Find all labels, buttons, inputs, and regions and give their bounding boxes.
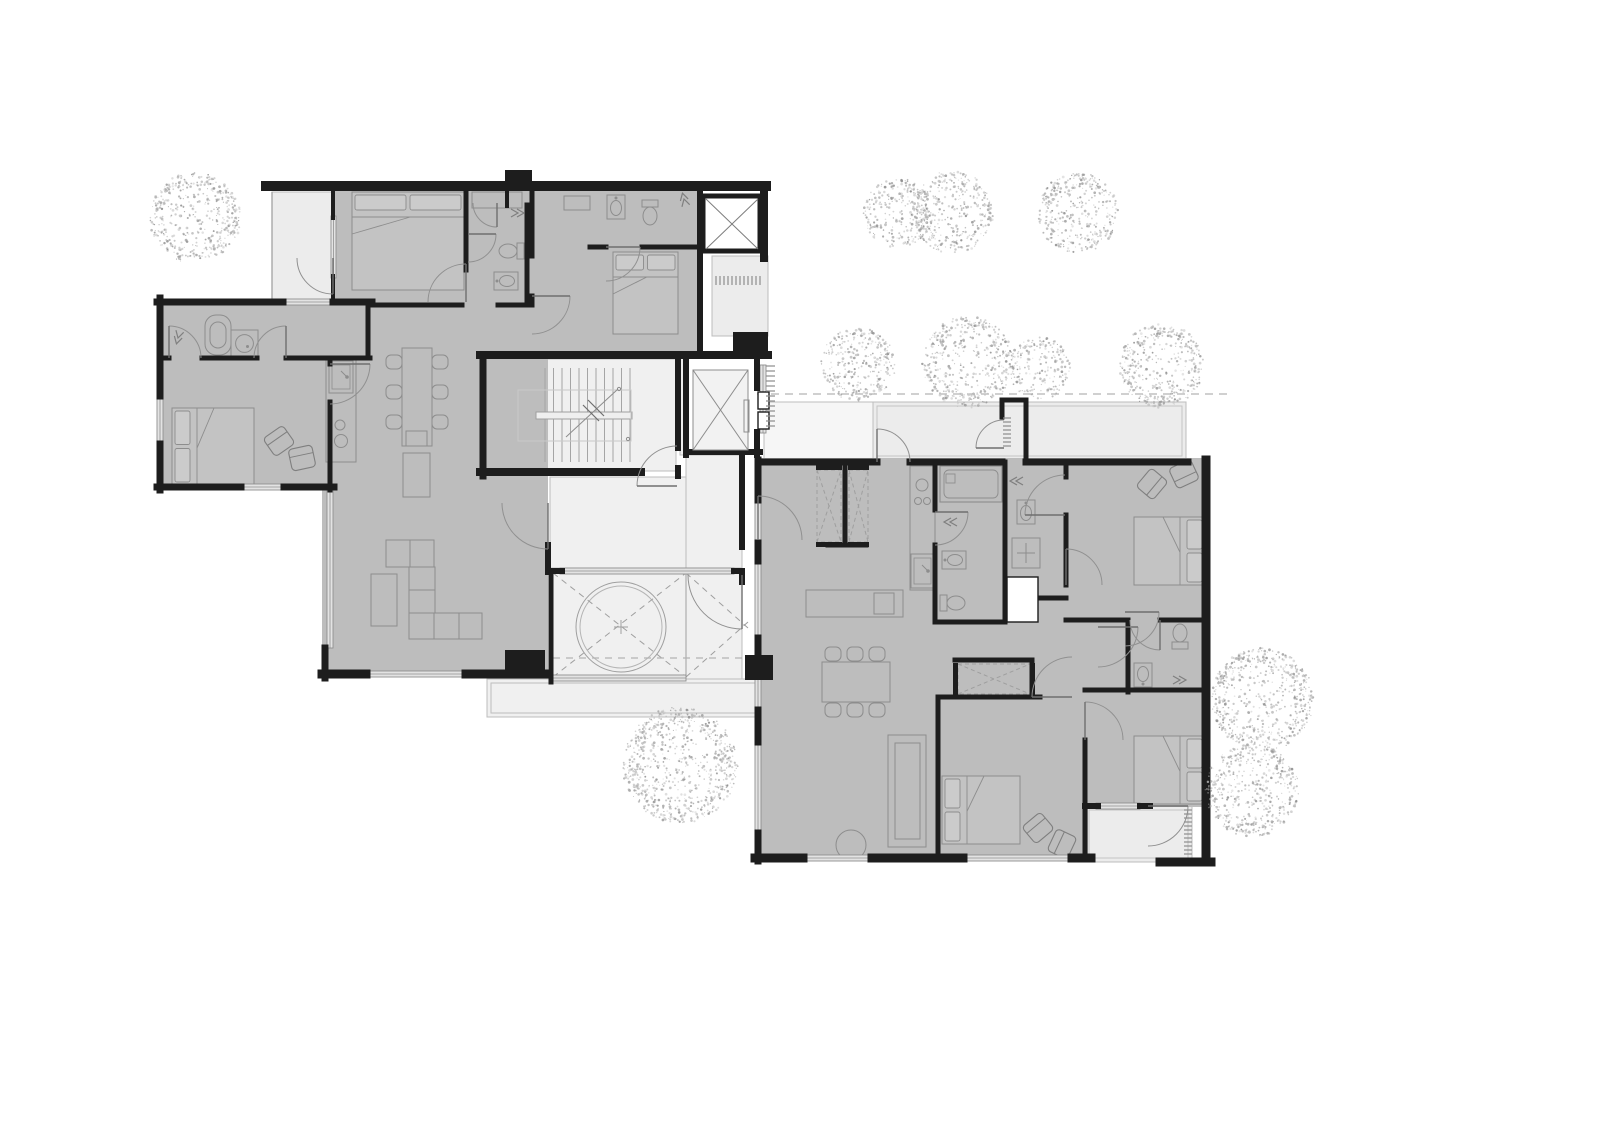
dining-chair-symbol [825, 647, 841, 661]
wall-stub [1007, 577, 1038, 622]
tree-symbol [622, 707, 738, 823]
pillow [175, 411, 190, 445]
dining-chair-symbol [869, 647, 885, 661]
pillow [945, 812, 960, 841]
pillow [945, 779, 960, 808]
tree-symbol [820, 328, 895, 402]
pillow [355, 195, 406, 210]
bed-symbol [942, 776, 1020, 844]
tree-symbol [1038, 173, 1119, 253]
pillow [1187, 553, 1202, 582]
bed-symbol [172, 408, 254, 485]
room-area [758, 458, 1088, 860]
dining-chair-symbol [847, 647, 863, 661]
wall-stub [733, 332, 768, 356]
bed-symbol [1134, 736, 1205, 804]
dining-chair-symbol [386, 385, 402, 399]
wall-stub [505, 650, 545, 676]
terrace-area [550, 477, 686, 569]
pillow [410, 195, 461, 210]
decor-rect [536, 412, 632, 419]
floor-plan-drawing [0, 0, 1600, 1131]
dining-chair-symbol [386, 355, 402, 369]
tree-symbol [1205, 743, 1299, 837]
dining-chair-symbol [386, 415, 402, 429]
floor-plan-page [0, 0, 1600, 1131]
dining-chair-symbol [432, 415, 448, 429]
dining-chair-symbol [432, 385, 448, 399]
terrace-area [550, 568, 742, 680]
tree-symbol [1119, 323, 1204, 409]
dining-chair-symbol [432, 355, 448, 369]
wall-stub [745, 655, 773, 680]
room-area [1088, 620, 1205, 692]
pillow [648, 255, 676, 270]
terrace-area [686, 455, 742, 568]
dining-chair-symbol [869, 703, 885, 717]
dining-chair-symbol [847, 703, 863, 717]
pillow [1187, 739, 1202, 768]
pillow [175, 449, 190, 483]
terrace-area [873, 402, 1186, 460]
bed-symbol [352, 192, 464, 290]
pillow [1187, 772, 1202, 801]
terrace-area [764, 402, 873, 460]
bed-symbol [613, 252, 678, 334]
tree-symbol [921, 316, 1014, 408]
terrace-area [487, 679, 760, 717]
wall-stub [505, 170, 532, 188]
bed-symbol [1134, 517, 1205, 585]
tree-symbol [150, 172, 241, 261]
pillow [1187, 520, 1202, 549]
tree-symbol [1212, 647, 1315, 752]
tree-symbol [1009, 337, 1071, 400]
dining-chair-symbol [825, 703, 841, 717]
terrace-area [712, 256, 768, 336]
terrace-area [272, 192, 332, 302]
pillow [616, 255, 644, 270]
